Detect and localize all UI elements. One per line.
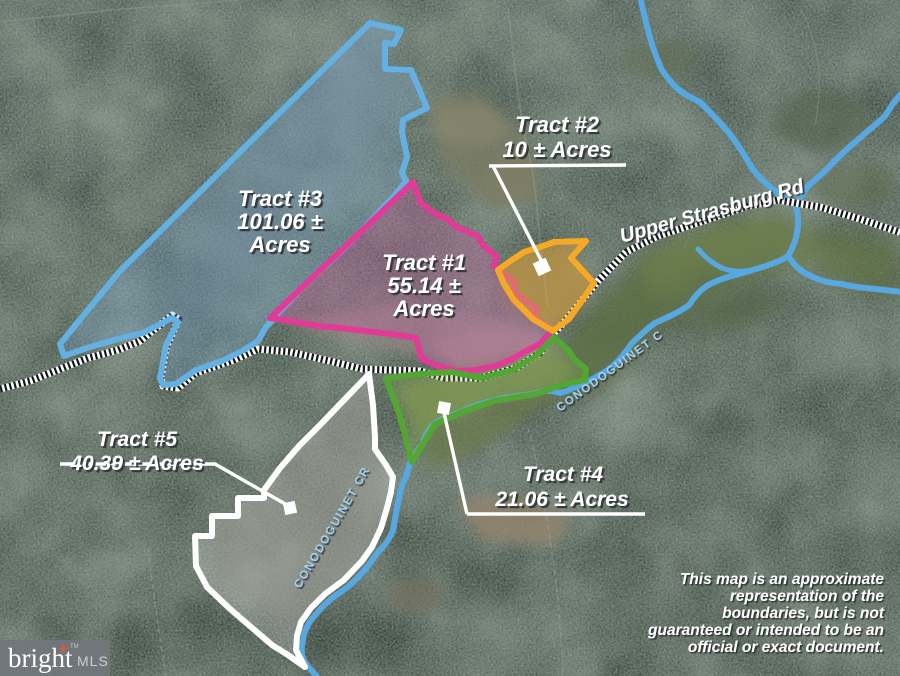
- svg-text:boundaries, but is not: boundaries, but is not: [722, 605, 885, 622]
- svg-text:Tract #1: Tract #1: [382, 250, 466, 275]
- svg-text:Tract #2: Tract #2: [515, 112, 600, 137]
- svg-text:This map is an approximate: This map is an approximate: [680, 571, 885, 588]
- svg-text:10 ± Acres: 10 ± Acres: [502, 137, 611, 162]
- svg-text:Tract #5: Tract #5: [97, 428, 177, 451]
- svg-text:TM: TM: [70, 644, 79, 650]
- svg-text:representation of the: representation of the: [730, 588, 885, 605]
- svg-text:Acres: Acres: [248, 232, 310, 257]
- svg-text:official or exact document.: official or exact document.: [688, 639, 884, 656]
- svg-text:101.06 ±: 101.06 ±: [237, 209, 322, 234]
- svg-text:40.39 ± Acres: 40.39 ± Acres: [69, 452, 203, 475]
- svg-text:Tract #4: Tract #4: [523, 463, 603, 486]
- svg-text:MLS: MLS: [77, 653, 109, 669]
- svg-text:Tract #3: Tract #3: [238, 186, 322, 211]
- svg-text:55.14 ±: 55.14 ±: [387, 273, 460, 298]
- svg-text:Acres: Acres: [392, 296, 454, 321]
- svg-text:21.06 ± Acres: 21.06 ± Acres: [494, 488, 628, 511]
- svg-text:guaranteed or intended to be a: guaranteed or intended to be an: [647, 622, 884, 639]
